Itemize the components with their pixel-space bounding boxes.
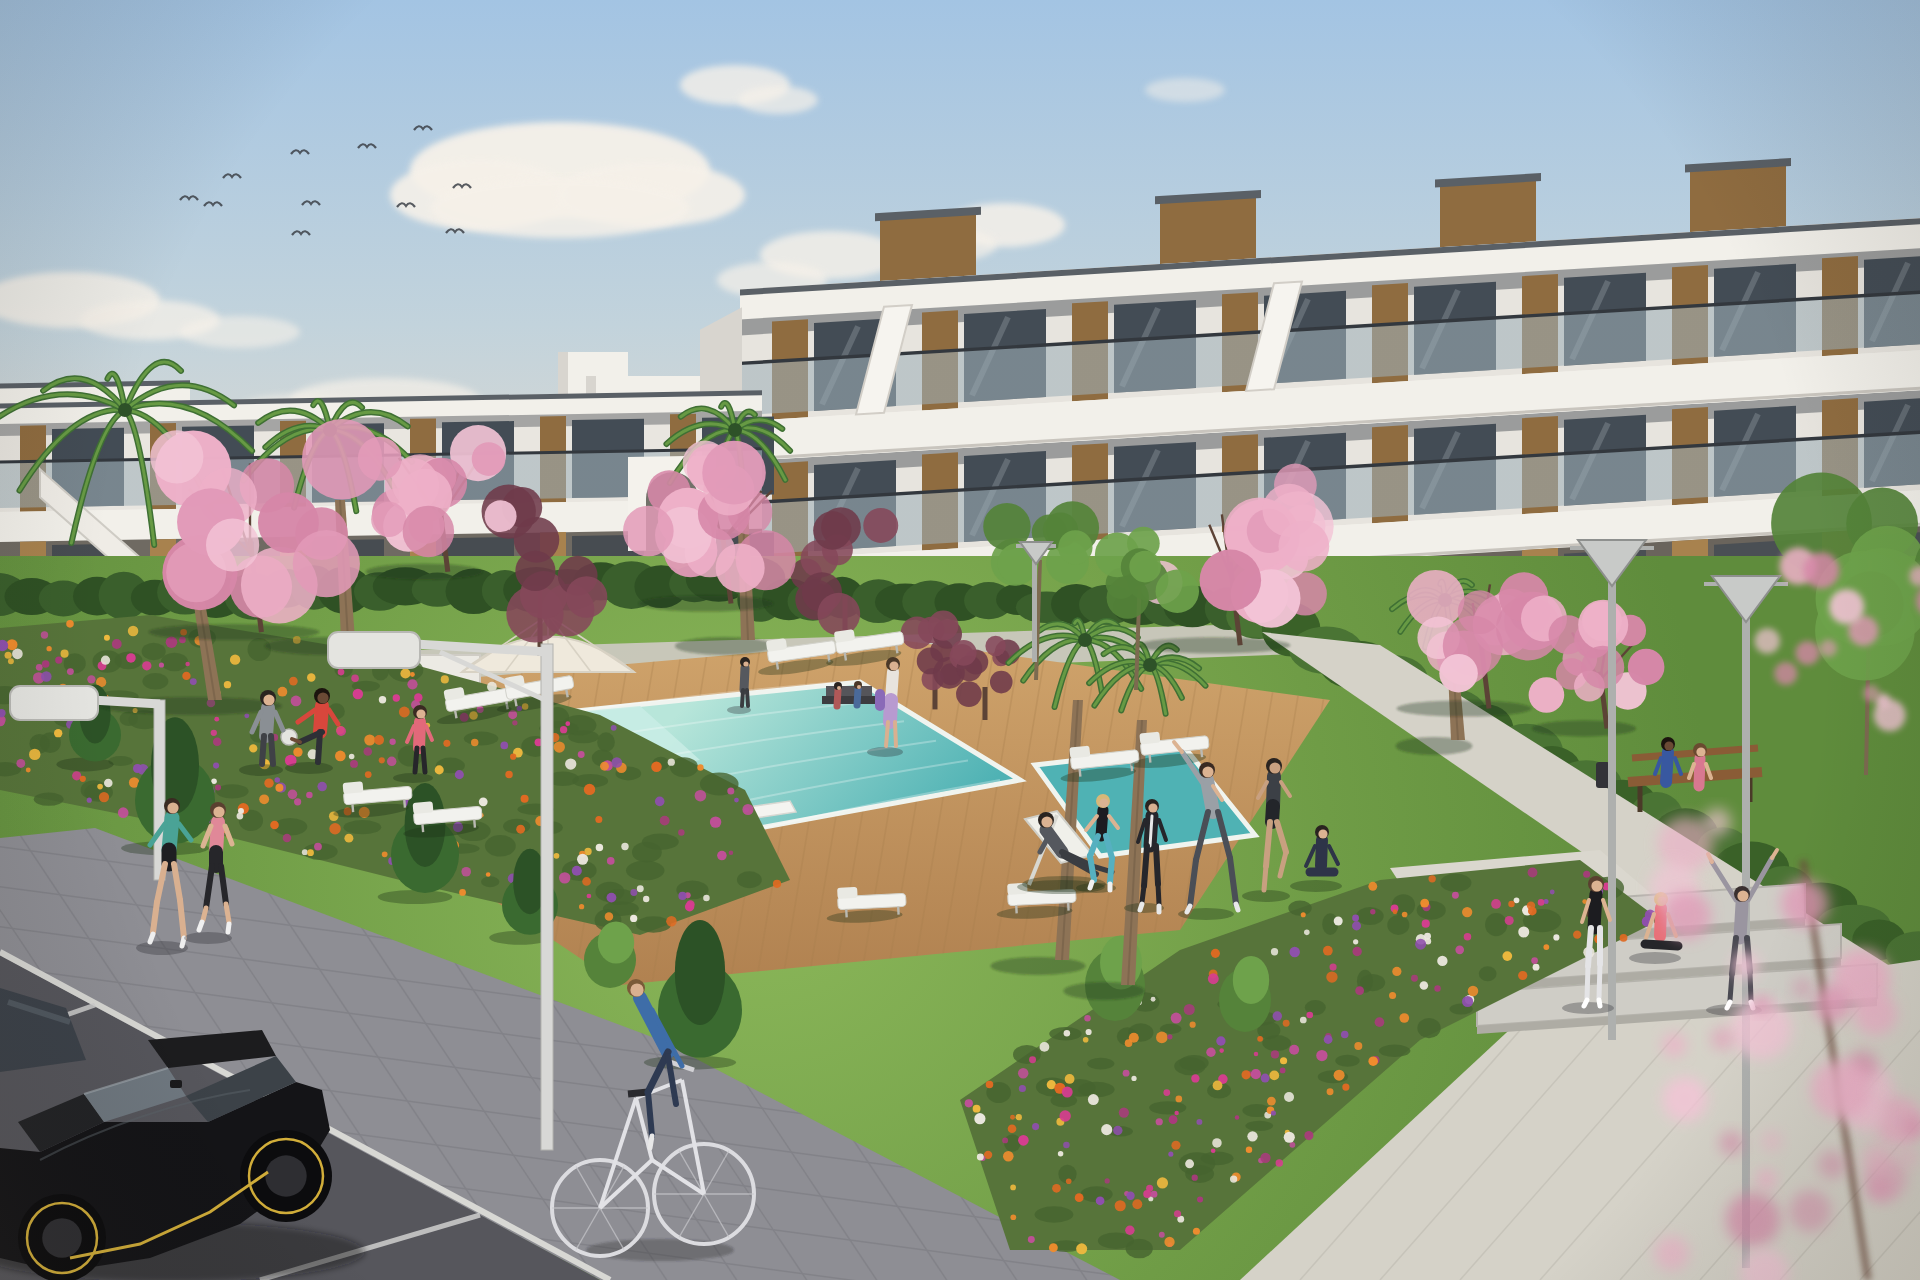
architectural-render: Sunny 3D architectural rendering: white … bbox=[0, 0, 1920, 1280]
vignette bbox=[0, 0, 1920, 1280]
render-viewport: Sunny 3D architectural rendering: white … bbox=[0, 0, 1920, 1280]
foreground-layer bbox=[0, 0, 1920, 1280]
